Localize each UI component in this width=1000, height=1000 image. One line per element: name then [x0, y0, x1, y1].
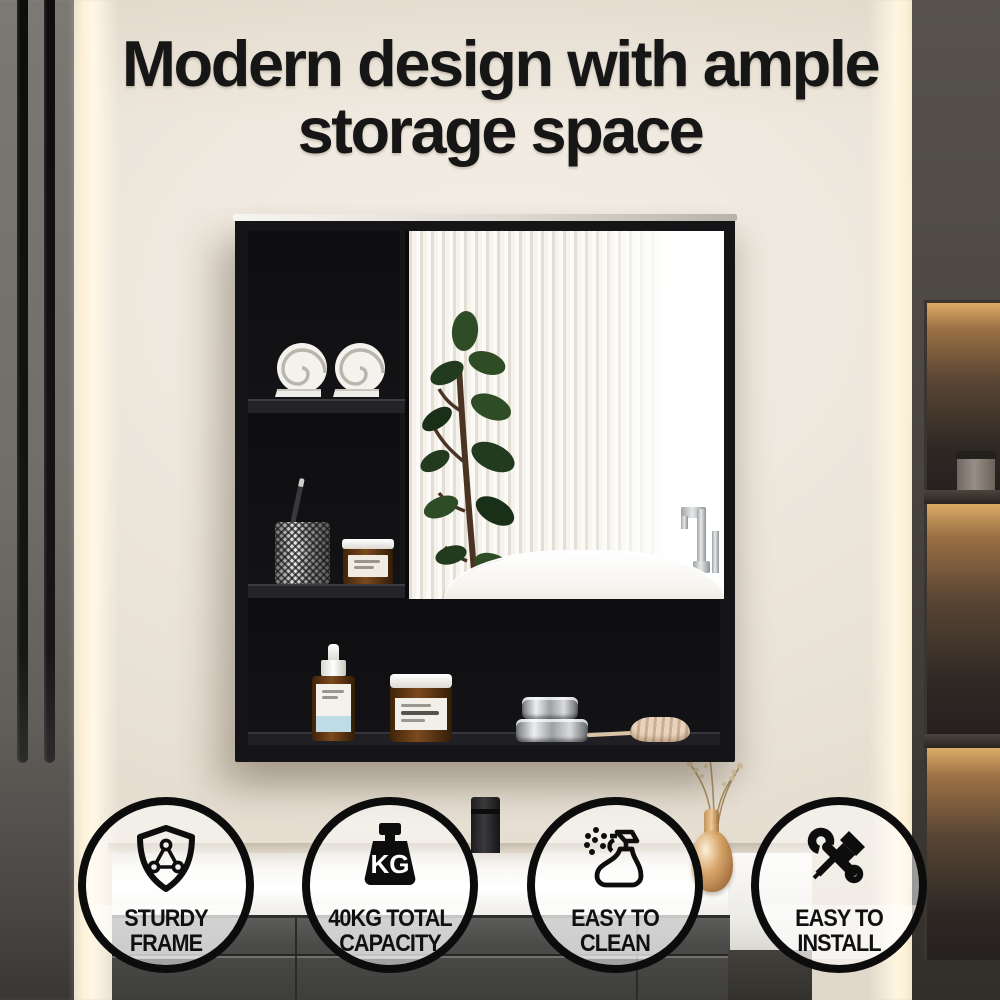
dropper-collar: [321, 660, 346, 676]
cabinet-top-edge: [233, 214, 737, 221]
mirror-door: [405, 231, 724, 599]
right-display-niche: [924, 300, 1000, 960]
product-marketing-image: Modern design with ample storage space: [0, 0, 1000, 1000]
drawer-seam: [295, 918, 297, 1000]
mirror-cabinet: [235, 214, 735, 762]
dropper-label-band: [316, 716, 351, 732]
headline-line-1: Modern design with ample: [0, 30, 1000, 97]
niche-shelf-section: [927, 504, 1000, 734]
badge-label: EASY TO CLEAN: [534, 906, 696, 956]
reflected-faucet-spout: [681, 516, 688, 529]
loofah-sponge: [630, 717, 690, 742]
badge-label: EASY TO INSTALL: [758, 906, 920, 956]
amber-jar-small: [343, 547, 393, 584]
metal-tin: [516, 719, 588, 742]
headline-line-2: storage space: [0, 97, 1000, 164]
faucet-spout-groove: [471, 809, 500, 814]
feature-badge-install: EASY TO INSTALL: [751, 797, 927, 973]
badge-label: 40KG TOTAL CAPACITY: [309, 906, 471, 956]
badge-label: STURDY FRAME: [85, 906, 247, 956]
dropper-label: [316, 684, 351, 732]
feature-badge-sturdy-frame: STURDY FRAME: [78, 797, 254, 973]
feature-badge-clean: EASY TO CLEAN: [527, 797, 703, 973]
rolled-towel: [273, 342, 331, 399]
niche-shelf: [924, 734, 1000, 748]
weight-capacity-icon: KG: [354, 819, 426, 891]
metal-tin: [522, 697, 578, 719]
cabinet-shelf: [248, 584, 405, 598]
headline: Modern design with ample storage space: [0, 30, 1000, 164]
niche-shelf-section: [927, 303, 1000, 490]
reflected-second-tap: [712, 531, 719, 573]
rolled-towel: [331, 342, 389, 399]
mesh-tumbler: [275, 522, 330, 584]
dropper-bottle: [312, 644, 355, 741]
feature-badge-capacity: KG 40KG TOTAL CAPACITY: [302, 797, 478, 973]
dropper-bottle-body: [312, 676, 355, 741]
amber-jar-large: [390, 684, 452, 742]
svg-text:KG: KG: [371, 849, 410, 879]
candle-jar-lid: [955, 451, 997, 459]
cabinet-shelf: [248, 399, 405, 413]
candle-jar: [957, 457, 995, 493]
jar-lid: [342, 539, 394, 549]
jar-label: [395, 698, 447, 730]
niche-shelf: [924, 490, 1000, 504]
jar-lid: [390, 674, 452, 688]
niche-shelf-section: [927, 748, 1000, 958]
spray-bottle-icon: [579, 823, 651, 895]
jar-label: [348, 555, 388, 577]
shield-frame-icon: [130, 823, 202, 895]
tools-icon: [803, 823, 875, 895]
